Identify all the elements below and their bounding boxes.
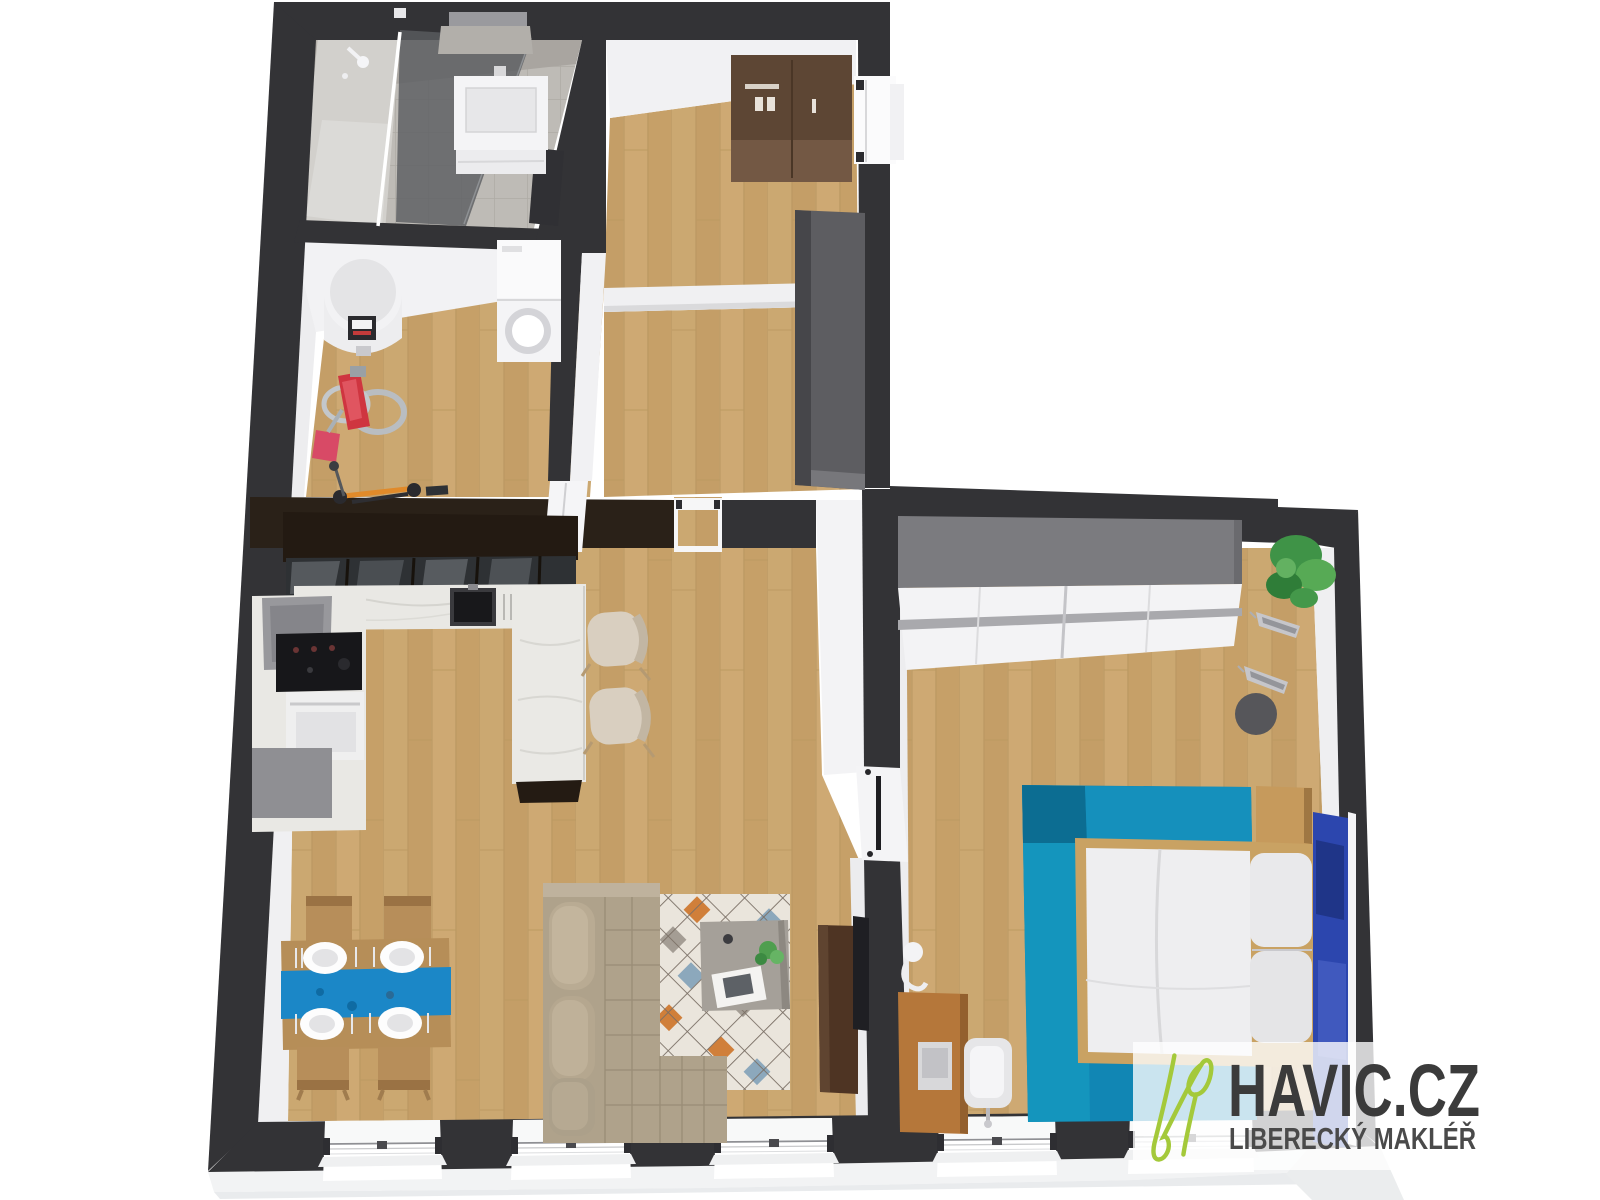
- svg-text:HAVIC.CZ: HAVIC.CZ: [1228, 1049, 1480, 1132]
- svg-text:LIBERECKÝ MAKLÉŘ: LIBERECKÝ MAKLÉŘ: [1229, 1120, 1476, 1156]
